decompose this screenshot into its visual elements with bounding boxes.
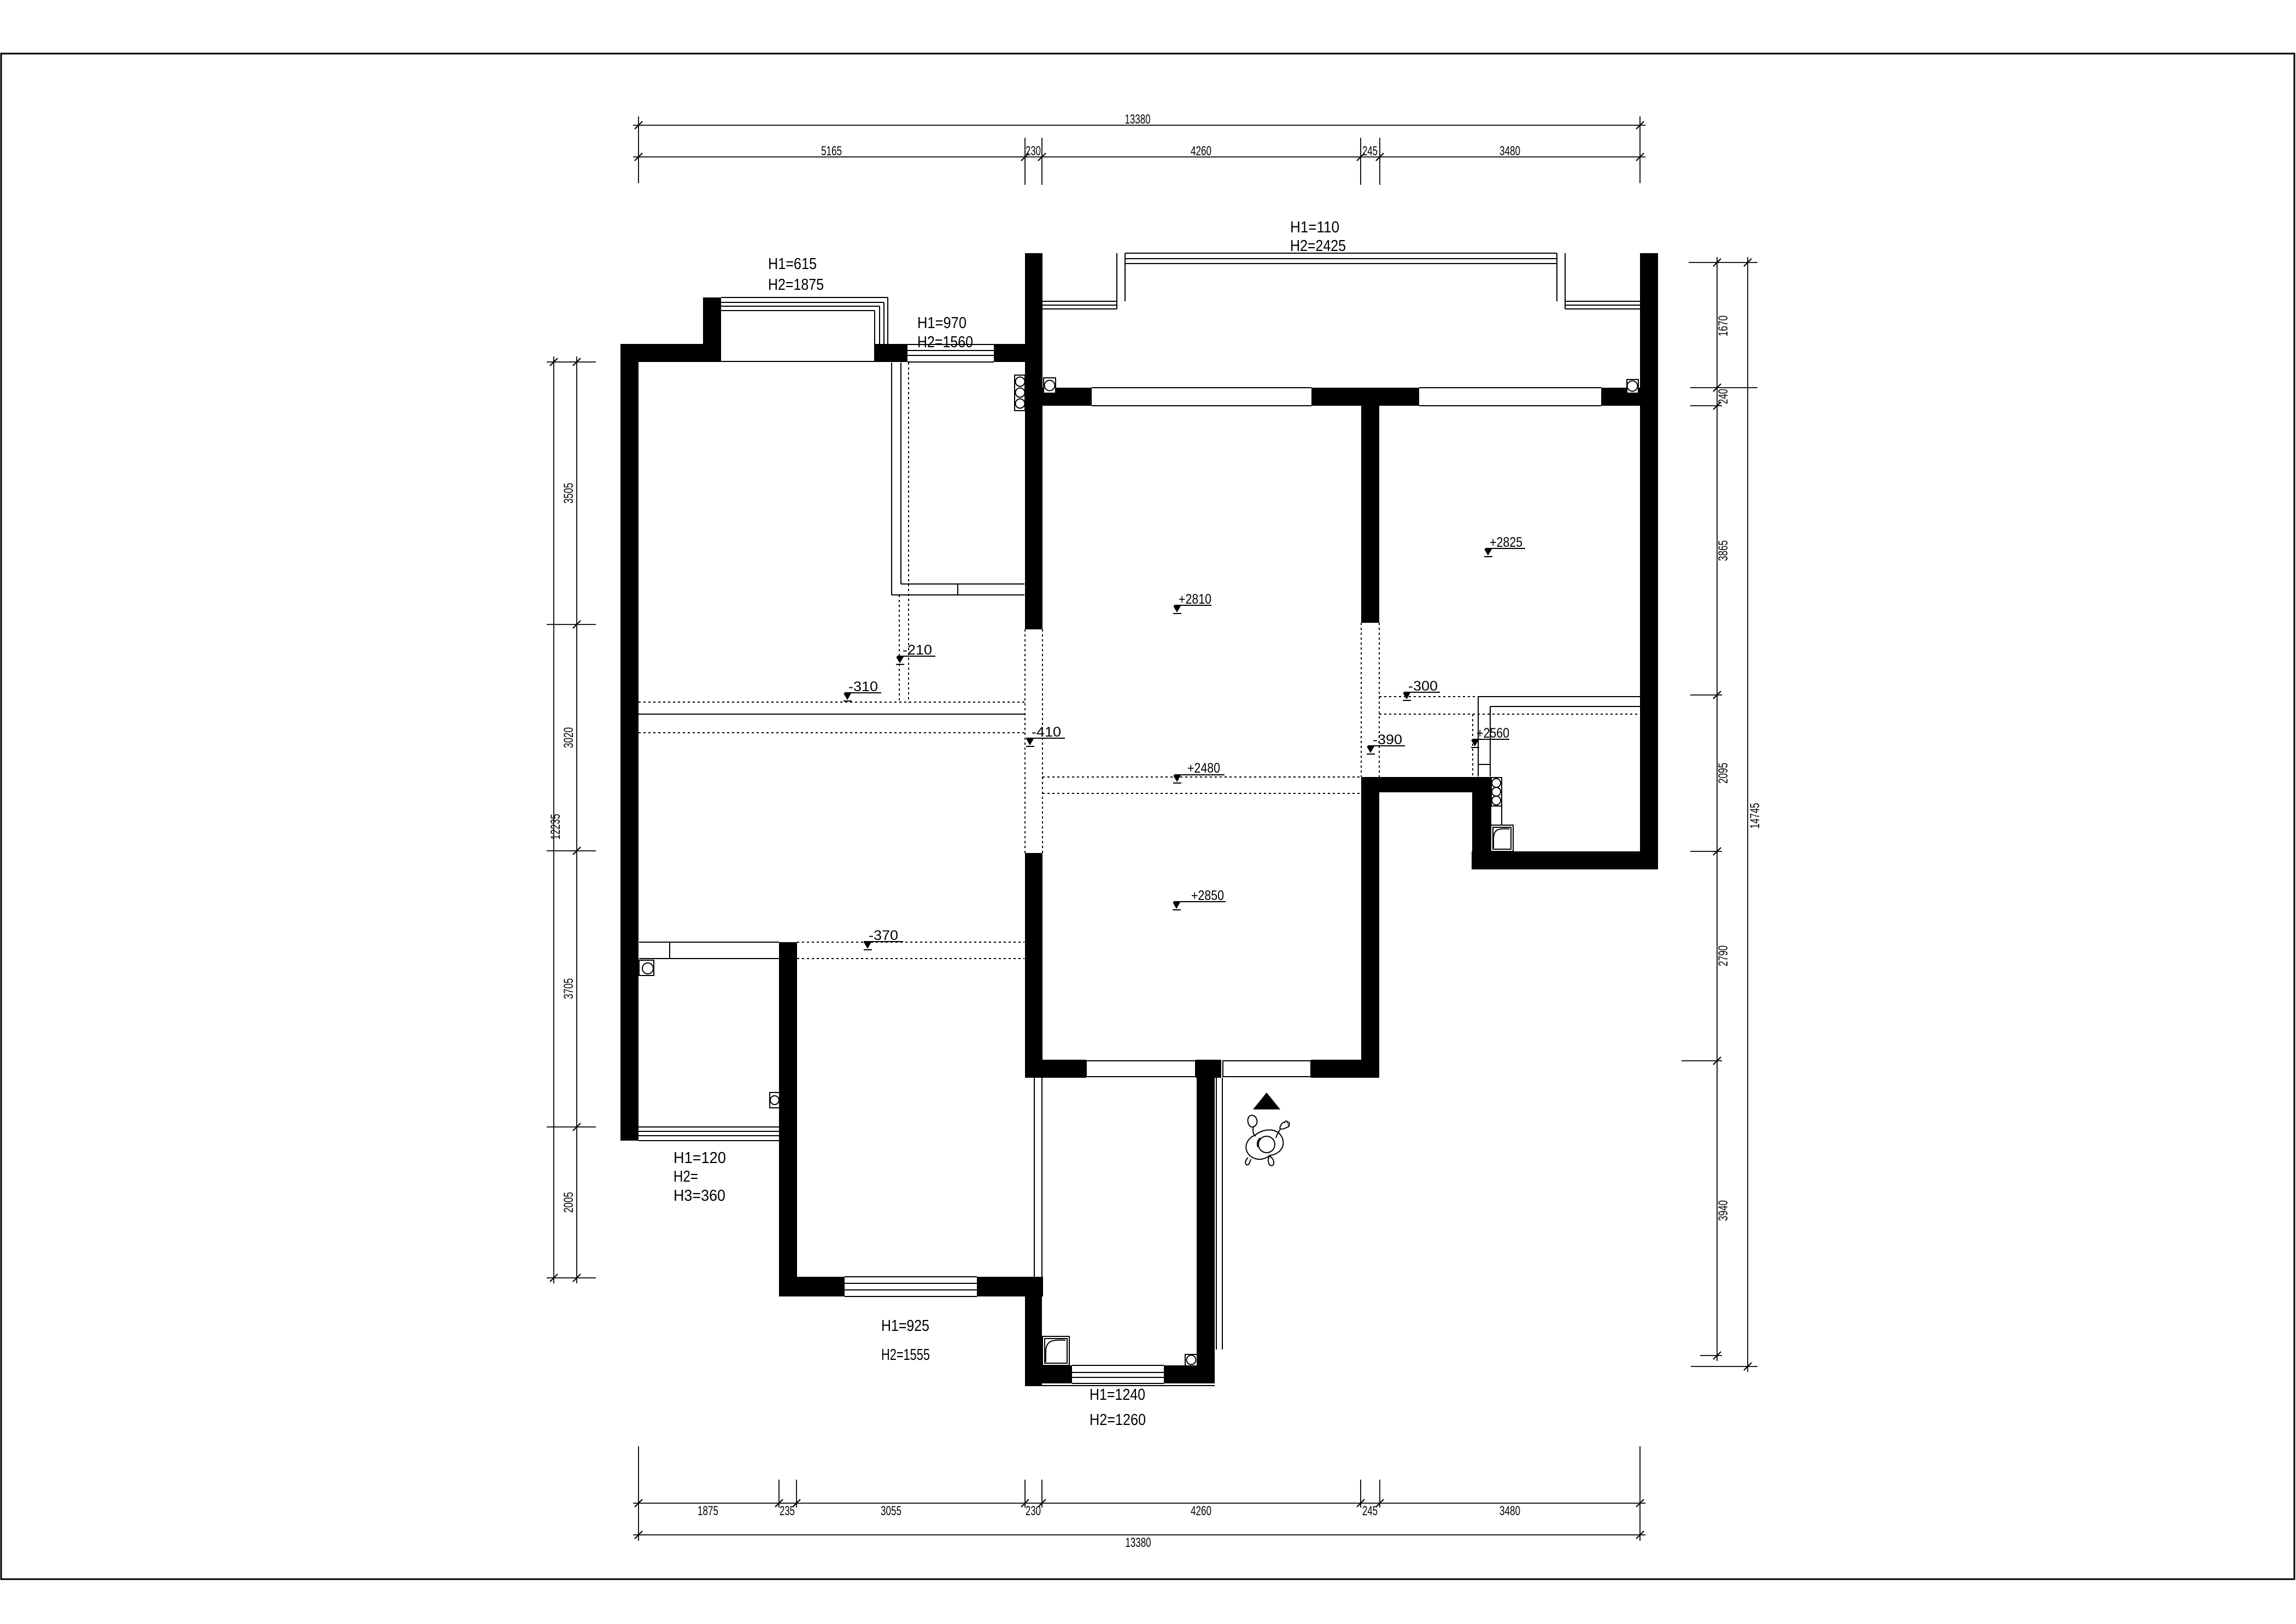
svg-text:12235: 12235: [548, 814, 563, 840]
svg-text:3865: 3865: [1716, 540, 1731, 561]
svg-text:3480: 3480: [1500, 1504, 1520, 1518]
svg-text:4260: 4260: [1191, 1504, 1211, 1518]
svg-text:235: 235: [780, 1504, 795, 1518]
svg-text:5165: 5165: [821, 144, 842, 159]
svg-text:H1=120: H1=120: [673, 1149, 726, 1167]
svg-text:3705: 3705: [561, 978, 576, 999]
svg-text:H1=925: H1=925: [881, 1317, 929, 1335]
svg-text:+2560: +2560: [1477, 726, 1509, 741]
svg-text:H2=: H2=: [673, 1168, 698, 1185]
svg-text:-410: -410: [1032, 725, 1061, 740]
svg-text:3055: 3055: [881, 1504, 901, 1518]
svg-text:-390: -390: [1373, 732, 1402, 747]
svg-text:3020: 3020: [561, 727, 576, 748]
svg-text:H2=1260: H2=1260: [1090, 1411, 1146, 1429]
svg-text:14745: 14745: [1748, 803, 1762, 829]
svg-text:H3=360: H3=360: [673, 1187, 725, 1205]
svg-text:1875: 1875: [698, 1504, 718, 1518]
svg-text:2790: 2790: [1716, 945, 1731, 966]
svg-text:13380: 13380: [1126, 1535, 1151, 1550]
svg-text:+2825: +2825: [1490, 535, 1522, 550]
svg-text:+2810: +2810: [1179, 592, 1211, 607]
svg-text:245: 245: [1362, 144, 1378, 159]
svg-text:H2=2425: H2=2425: [1290, 237, 1346, 255]
svg-text:245: 245: [1362, 1504, 1378, 1518]
svg-text:-300: -300: [1408, 679, 1438, 694]
svg-text:H2=1560: H2=1560: [917, 334, 973, 351]
svg-text:240: 240: [1716, 389, 1731, 404]
svg-text:3480: 3480: [1500, 144, 1520, 159]
svg-text:230: 230: [1026, 1504, 1041, 1518]
svg-text:-370: -370: [869, 928, 898, 943]
svg-text:H1=615: H1=615: [768, 255, 817, 273]
svg-text:4260: 4260: [1191, 144, 1211, 159]
svg-text:-310: -310: [848, 679, 878, 694]
svg-text:H1=1240: H1=1240: [1090, 1386, 1145, 1404]
svg-text:3505: 3505: [561, 483, 576, 504]
svg-text:H1=110: H1=110: [1290, 219, 1339, 236]
svg-text:3940: 3940: [1716, 1200, 1731, 1221]
svg-text:+2850: +2850: [1191, 888, 1224, 903]
svg-text:2005: 2005: [561, 1192, 576, 1213]
svg-text:-210: -210: [903, 642, 932, 658]
svg-text:H2=1555: H2=1555: [881, 1346, 930, 1364]
svg-text:H2=1875: H2=1875: [768, 276, 824, 294]
svg-text:H1=970: H1=970: [917, 314, 967, 332]
svg-text:13380: 13380: [1125, 112, 1151, 127]
svg-text:2095: 2095: [1716, 763, 1731, 784]
svg-text:230: 230: [1026, 144, 1041, 159]
svg-text:1670: 1670: [1716, 316, 1731, 336]
svg-text:+2480: +2480: [1187, 761, 1220, 776]
